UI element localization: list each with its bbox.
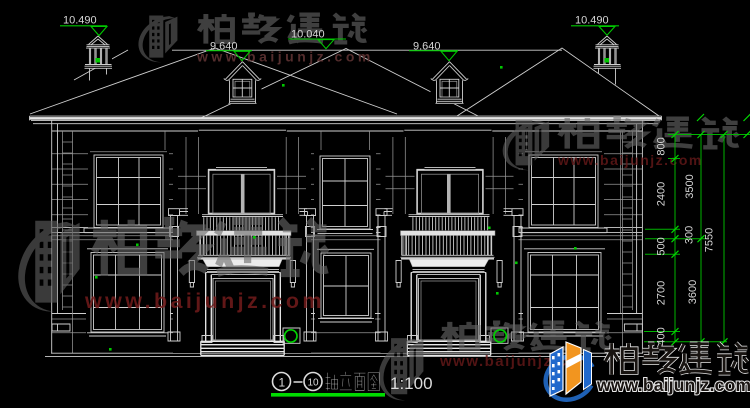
svg-text:9.640: 9.640 <box>210 41 238 53</box>
svg-text:800: 800 <box>656 137 668 155</box>
svg-text:7550: 7550 <box>704 228 716 252</box>
svg-text:3600: 3600 <box>687 280 699 304</box>
svg-text:300: 300 <box>683 226 695 244</box>
svg-text:10.040: 10.040 <box>291 29 325 41</box>
svg-text:2400: 2400 <box>656 182 668 206</box>
svg-text:www.baijunjz.com: www.baijunjz.com <box>84 289 325 313</box>
svg-text:10.490: 10.490 <box>575 15 609 27</box>
svg-text:3500: 3500 <box>684 174 696 198</box>
svg-text:1:100: 1:100 <box>390 374 433 393</box>
svg-text:500: 500 <box>656 237 668 255</box>
svg-text:10: 10 <box>308 378 320 389</box>
svg-text:www.baijunjz.com: www.baijunjz.com <box>596 375 750 395</box>
svg-text:www.baijunjz.com: www.baijunjz.com <box>557 152 703 168</box>
svg-text:400: 400 <box>656 327 668 345</box>
svg-text:10.490: 10.490 <box>63 15 97 27</box>
svg-text:2700: 2700 <box>656 281 668 305</box>
svg-text:9.640: 9.640 <box>413 41 441 53</box>
svg-text:1: 1 <box>279 376 286 390</box>
